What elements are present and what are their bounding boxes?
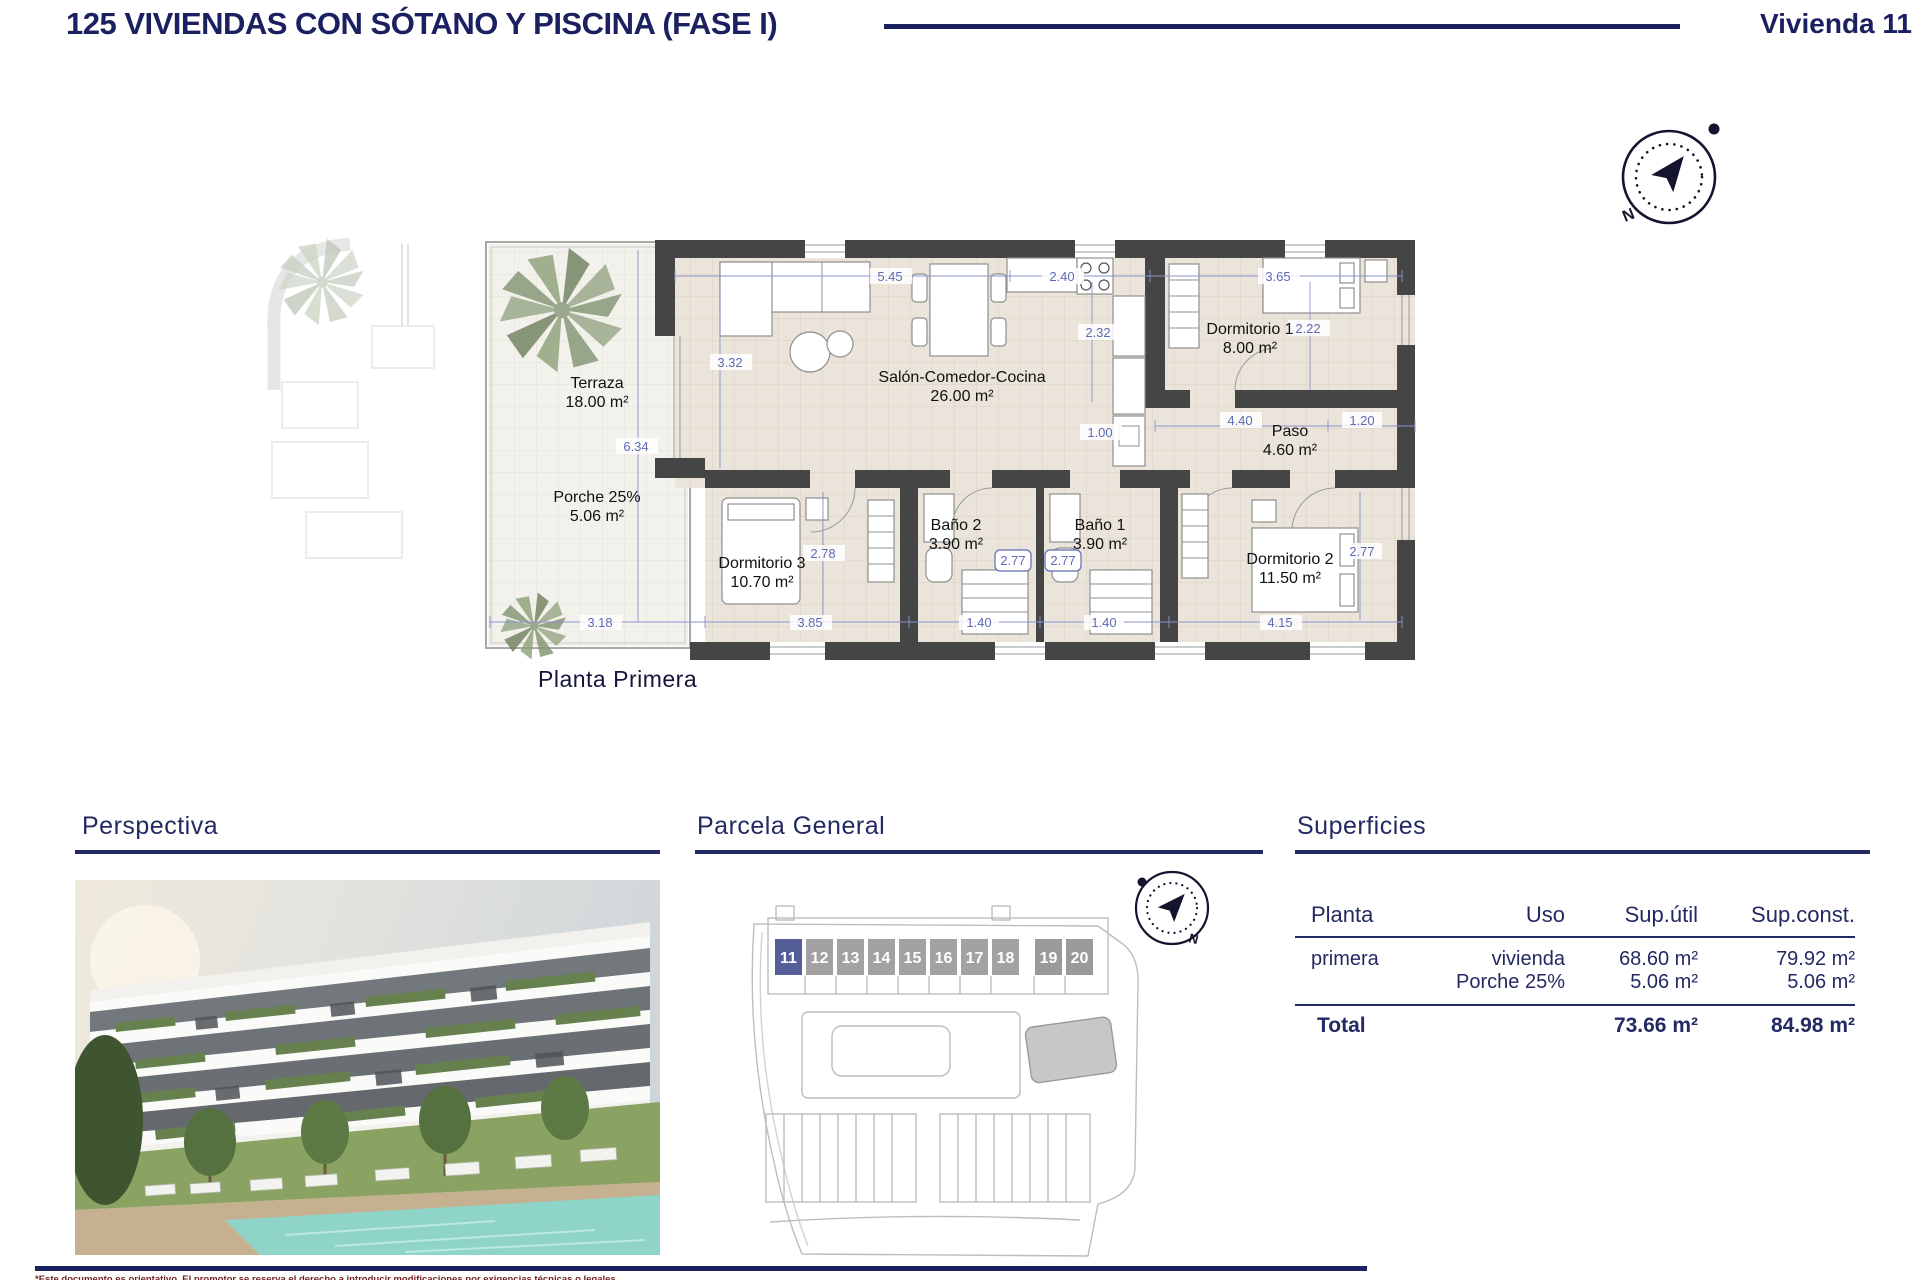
compass-needle-icon (1651, 147, 1695, 192)
dim-dorm3-height: 2.78 (810, 546, 835, 561)
perspectiva-rule (75, 850, 660, 854)
unit-number-19: 19 (1040, 950, 1058, 967)
parcela-rule (695, 850, 1263, 854)
unit-number-20: 20 (1071, 950, 1089, 967)
superficies-rule (1295, 850, 1870, 854)
lower-buildings (766, 1114, 1090, 1222)
surfaces-table-header: Planta Uso Sup.útil Sup.const. (1295, 902, 1855, 936)
cell-total-label: Total (1295, 1014, 1413, 1038)
unit-number-18: 18 (997, 950, 1015, 967)
parcel-map: 11 12 13 14 15 16 17 18 19 20 (740, 862, 1240, 1262)
cell-total-sup-util: 73.66 m² (1565, 1014, 1698, 1038)
neighbor-unit-faded (272, 239, 434, 558)
svg-text:2.77: 2.77 (1050, 553, 1075, 568)
dim-salon-height: 3.32 (717, 355, 742, 370)
cell-sup-util: 5.06 m² (1565, 971, 1698, 994)
cell-uso: Porche 25% (1413, 971, 1565, 994)
table-row: primera vivienda 68.60 m² 79.92 m² (1295, 948, 1855, 971)
dim-bano1-width: 1.40 (1091, 615, 1116, 630)
page-title: 125 VIVIENDAS CON SÓTANO Y PISCINA (FASE… (66, 6, 777, 42)
dim-dorm1-width: 3.65 (1265, 269, 1290, 284)
room-dorm3-name: Dormitorio 3 (718, 555, 805, 572)
unit-number-13: 13 (842, 950, 860, 967)
room-terraza-name: Terraza (570, 375, 623, 392)
perspective-image (75, 880, 660, 1255)
room-dorm2-area: 11.50 m² (1259, 570, 1322, 587)
room-bano2-name: Baño 2 (931, 517, 982, 534)
cell-sup-const: 5.06 m² (1698, 971, 1855, 994)
unit-number-16: 16 (935, 950, 953, 967)
compass-parcel-north-label: N (1187, 930, 1200, 947)
room-bano2-area: 3.90 m² (929, 536, 984, 553)
unit-number-15: 15 (904, 950, 922, 967)
section-title-perspectiva: Perspectiva (82, 812, 218, 841)
room-porche-area: 5.06 m² (570, 508, 625, 525)
compass-dot (1709, 124, 1720, 135)
footer-disclaimer: *Este documento es orientativo. El promo… (35, 1274, 618, 1280)
dim-opening: 1.00 (1087, 425, 1112, 440)
floor-plan: 5.45 2.40 3.65 3.32 2.32 2.22 6.34 1.00 … (250, 230, 1450, 675)
dim-dorm2-height: 2.77 (1349, 544, 1374, 559)
table-row: Porche 25% 5.06 m² 5.06 m² (1295, 971, 1855, 994)
dim-bano2-door: 2.77 (995, 550, 1031, 571)
cell-total-sup-const: 84.98 m² (1698, 1014, 1855, 1038)
compass-icon-parcel: N (1136, 872, 1208, 947)
section-title-superficies: Superficies (1297, 812, 1426, 841)
room-paso-area: 4.60 m² (1263, 442, 1318, 459)
room-dorm2-name: Dormitorio 2 (1246, 551, 1333, 568)
unit-title: Vivienda 11 (1690, 8, 1912, 40)
col-header-uso: Uso (1413, 902, 1565, 928)
plan-caption: Planta Primera (538, 666, 697, 693)
dim-kitchen-width: 2.40 (1049, 269, 1074, 284)
cell-sup-const: 79.92 m² (1698, 948, 1855, 971)
dim-terraza-height: 6.34 (623, 439, 648, 454)
page: 125 VIVIENDAS CON SÓTANO Y PISCINA (FASE… (0, 0, 1920, 1280)
compass-icon: N (1608, 112, 1734, 238)
dim-dorm3-width: 3.85 (797, 615, 822, 630)
dim-terraza-width: 3.18 (587, 615, 612, 630)
surfaces-table: Planta Uso Sup.útil Sup.const. primera v… (1295, 902, 1855, 1038)
room-salon-area: 26.00 m² (930, 388, 994, 405)
footer-divider (35, 1266, 1367, 1271)
building-band-ticks (805, 976, 1065, 994)
col-header-planta: Planta (1295, 902, 1413, 928)
table-total-row: Total 73.66 m² 84.98 m² (1295, 1014, 1855, 1038)
room-salon-name: Salón-Comedor-Cocina (878, 369, 1045, 386)
section-title-parcela: Parcela General (697, 812, 885, 841)
svg-text:2.77: 2.77 (1000, 553, 1025, 568)
unit-number-12: 12 (811, 950, 829, 967)
room-bano1-area: 3.90 m² (1073, 536, 1128, 553)
room-bano1-name: Baño 1 (1075, 517, 1126, 534)
dim-salon-width: 5.45 (877, 269, 902, 284)
wardrobe-dorm3 (868, 500, 894, 582)
room-terraza-area: 18.00 m² (565, 394, 629, 411)
cell-uso: vivienda (1413, 948, 1565, 971)
room-dorm1-name: Dormitorio 1 (1206, 321, 1293, 338)
room-dorm3-area: 10.70 m² (730, 574, 794, 591)
unit-number-11: 11 (780, 950, 797, 967)
dim-paso-width: 4.40 (1227, 413, 1252, 428)
col-header-sup-const: Sup.const. (1698, 902, 1855, 928)
table-total-rule (1295, 1004, 1855, 1006)
cell-planta: primera (1295, 948, 1413, 971)
dim-dorm1-height: 2.22 (1295, 321, 1320, 336)
dim-dorm2-width: 4.15 (1267, 615, 1292, 630)
wardrobe-dorm1 (1169, 264, 1199, 348)
room-porche-name: Porche 25% (553, 489, 640, 506)
col-header-sup-util: Sup.útil (1565, 902, 1698, 928)
dim-paso-end: 1.20 (1349, 413, 1374, 428)
unit-number-14: 14 (873, 950, 891, 967)
title-divider (884, 24, 1680, 29)
dim-bano2-width: 1.40 (966, 615, 991, 630)
site-pool (1025, 1016, 1118, 1083)
room-paso-name: Paso (1272, 423, 1309, 440)
wardrobe-dorm2 (1182, 494, 1208, 578)
unit-blocks: 11 12 13 14 15 16 17 18 19 20 (774, 938, 1094, 976)
dim-bano1-door: 2.77 (1045, 550, 1081, 571)
room-dorm1-area: 8.00 m² (1223, 340, 1278, 357)
dim-kitchen-height: 2.32 (1085, 325, 1110, 340)
table-header-rule (1295, 936, 1855, 938)
cell-sup-util: 68.60 m² (1565, 948, 1698, 971)
unit-number-17: 17 (966, 950, 984, 967)
